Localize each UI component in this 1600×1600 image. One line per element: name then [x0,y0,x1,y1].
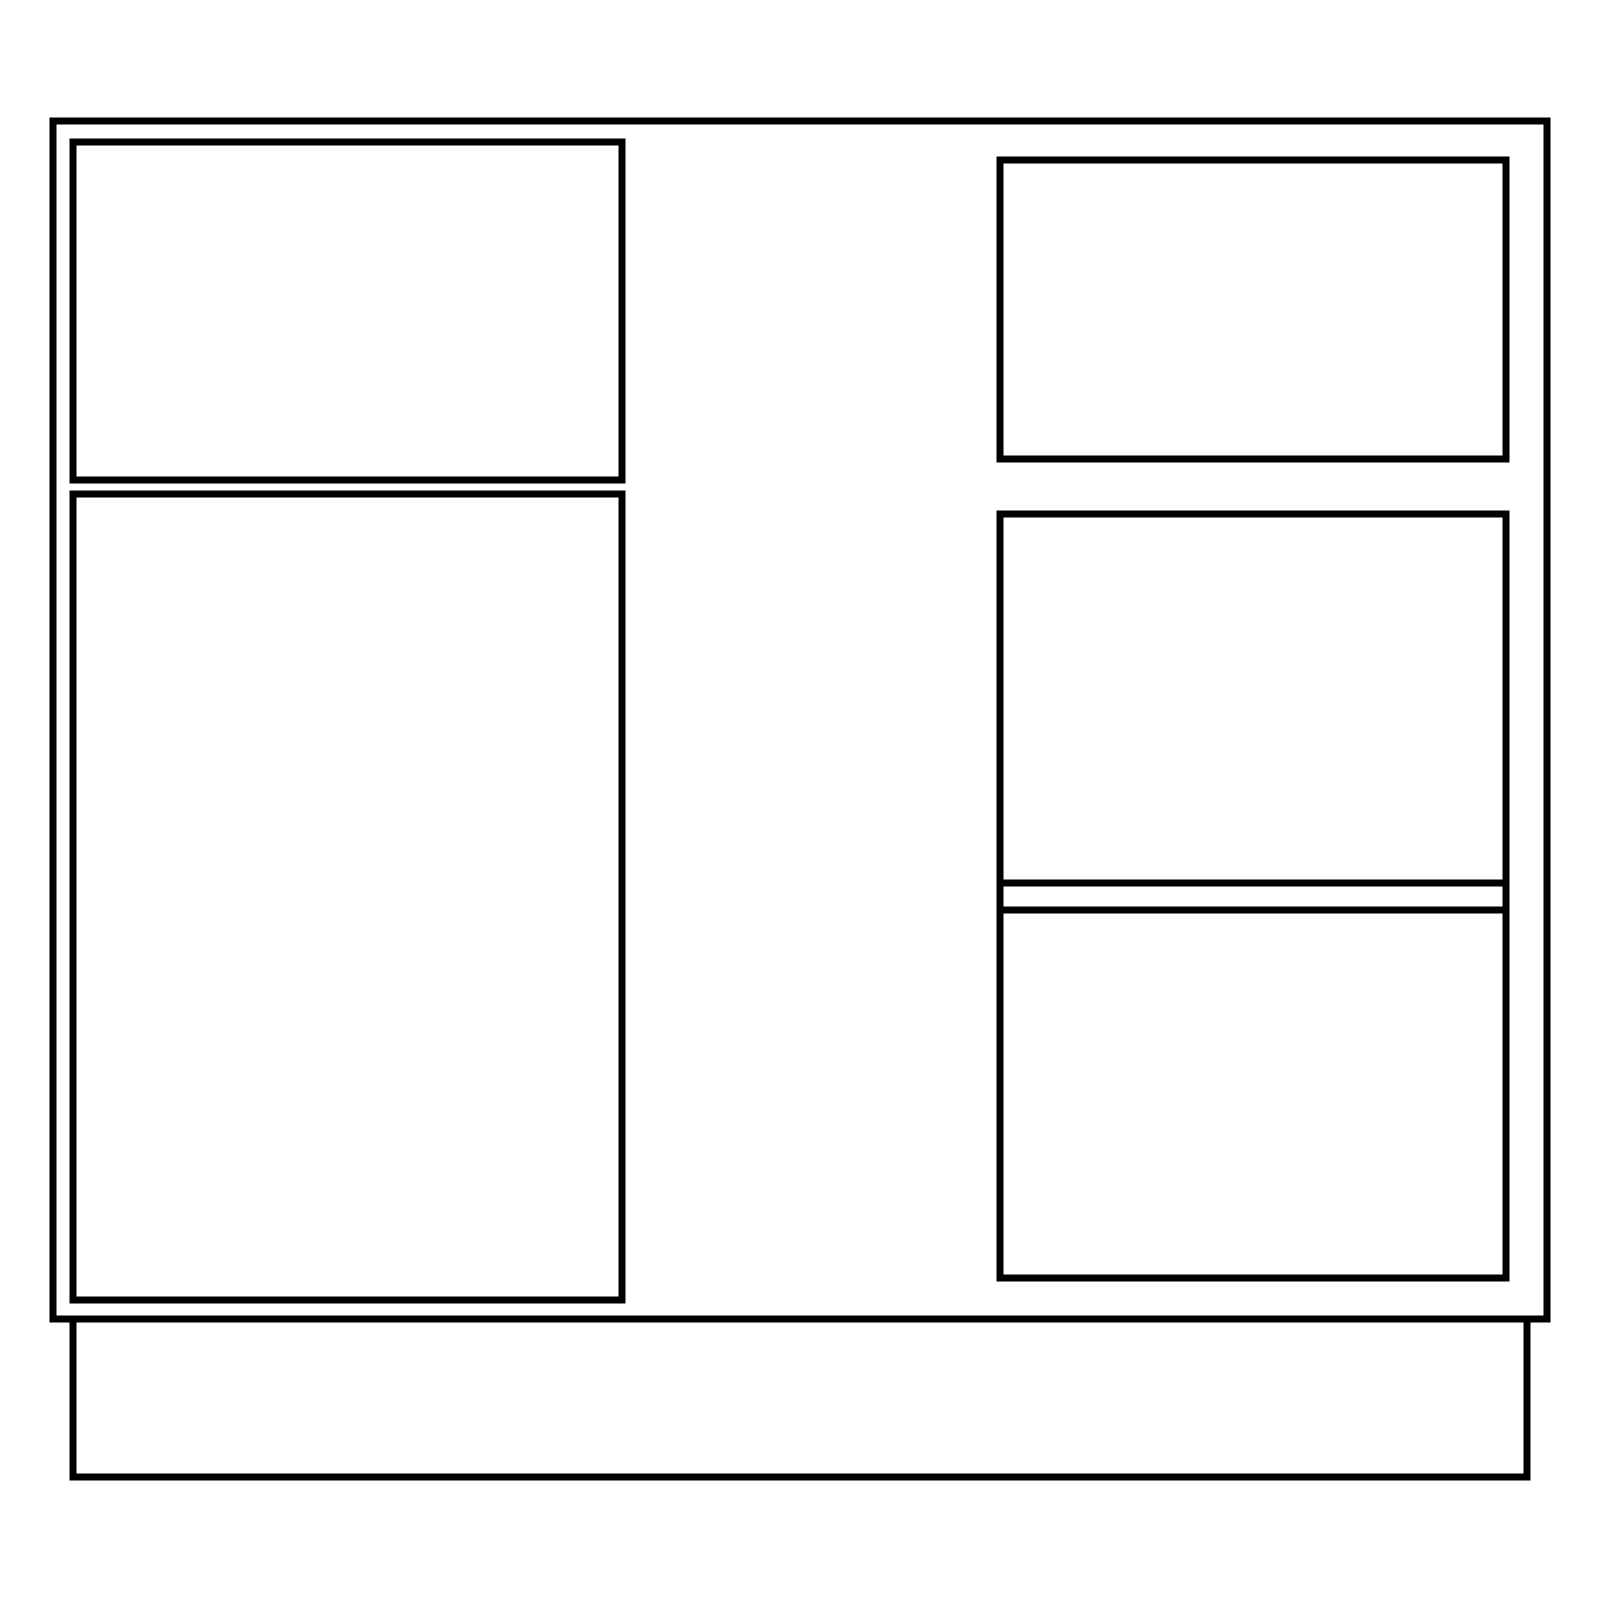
cabinet-outline [53,121,1547,1319]
left-door-panel [73,494,622,1300]
plinth-base [73,1319,1527,1477]
left-top-drawer-front [73,142,622,480]
cabinet-elevation-diagram [0,0,1600,1600]
line-drawing-canvas [0,0,1600,1600]
right-top-drawer-front [1000,160,1506,459]
right-lower-panel [1000,514,1506,1278]
